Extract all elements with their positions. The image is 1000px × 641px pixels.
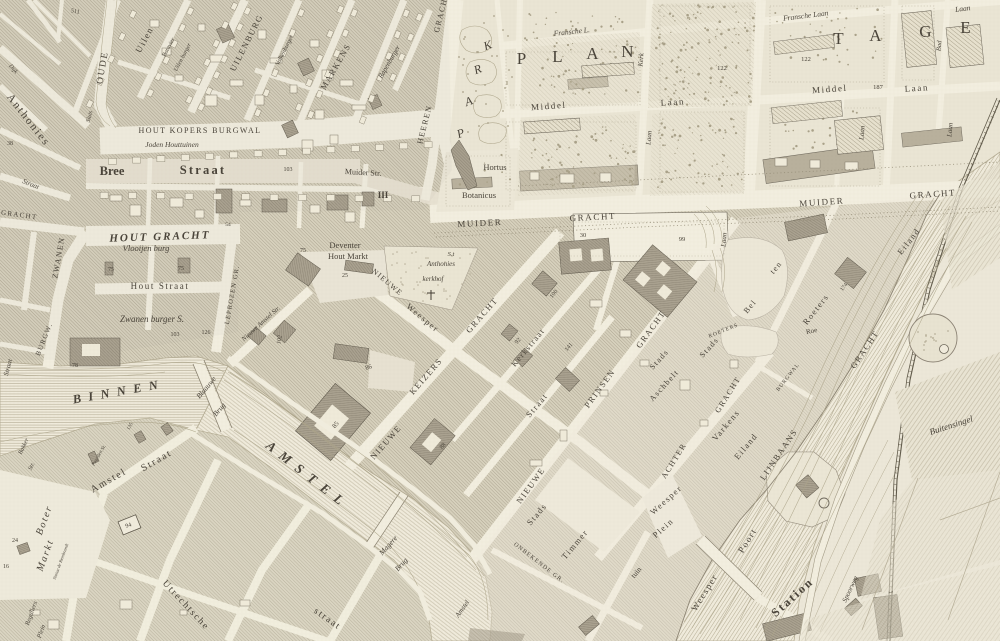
svg-text:A: A: [586, 44, 601, 63]
svg-text:Botanicus: Botanicus: [462, 190, 496, 200]
svg-text:L: L: [552, 47, 565, 66]
svg-text:A: A: [869, 26, 884, 45]
svg-text:E: E: [960, 18, 973, 37]
svg-text:P: P: [517, 49, 530, 68]
svg-text:30: 30: [580, 232, 587, 239]
svg-text:Kerk: Kerk: [636, 52, 645, 68]
svg-text:Hortus: Hortus: [483, 162, 506, 172]
svg-text:122: 122: [717, 65, 727, 72]
svg-text:24: 24: [12, 538, 18, 544]
svg-text:III: III: [378, 190, 389, 200]
svg-text:Hout Straat: Hout Straat: [131, 281, 190, 291]
svg-text:Laan: Laan: [945, 122, 954, 139]
svg-text:75: 75: [300, 248, 306, 254]
svg-text:N: N: [621, 42, 636, 61]
svg-text:Deventer: Deventer: [329, 240, 360, 250]
svg-text:103: 103: [284, 167, 293, 173]
svg-text:Bree: Bree: [100, 164, 125, 178]
svg-text:16: 16: [3, 564, 9, 570]
svg-text:122: 122: [801, 56, 811, 63]
svg-text:Joden Houttuinen: Joden Houttuinen: [145, 140, 199, 149]
svg-text:Zwanen burger S.: Zwanen burger S.: [120, 314, 184, 324]
svg-text:75: 75: [178, 266, 184, 272]
svg-text:78: 78: [72, 363, 78, 369]
svg-text:103: 103: [171, 332, 180, 338]
svg-text:Laan: Laan: [857, 125, 866, 142]
svg-text:99: 99: [679, 236, 686, 243]
svg-text:38: 38: [7, 141, 13, 147]
svg-text:HOUT KOPERS BURGWAL: HOUT KOPERS BURGWAL: [139, 126, 262, 135]
svg-text:G: G: [919, 22, 934, 41]
svg-text:Bad: Bad: [936, 40, 944, 52]
svg-text:Anthonies: Anthonies: [426, 260, 455, 268]
svg-text:Straat: Straat: [180, 163, 227, 177]
svg-text:Laan: Laan: [644, 130, 653, 147]
svg-text:Vlooijen burg: Vlooijen burg: [123, 243, 170, 253]
svg-text:54: 54: [225, 222, 231, 228]
svg-text:25: 25: [342, 273, 348, 279]
svg-text:S.t: S.t: [448, 251, 455, 258]
svg-text:Laan: Laan: [904, 82, 929, 94]
svg-text:187: 187: [873, 84, 884, 91]
svg-text:Laan: Laan: [660, 96, 685, 108]
svg-text:Laan: Laan: [719, 232, 728, 249]
svg-text:kerkhof: kerkhof: [423, 275, 445, 283]
svg-text:126: 126: [202, 330, 211, 336]
svg-text:Hout Markt: Hout Markt: [328, 251, 369, 261]
svg-text:Muider Str.: Muider Str.: [345, 167, 382, 178]
svg-text:75: 75: [108, 267, 114, 273]
svg-text:T: T: [833, 29, 846, 48]
